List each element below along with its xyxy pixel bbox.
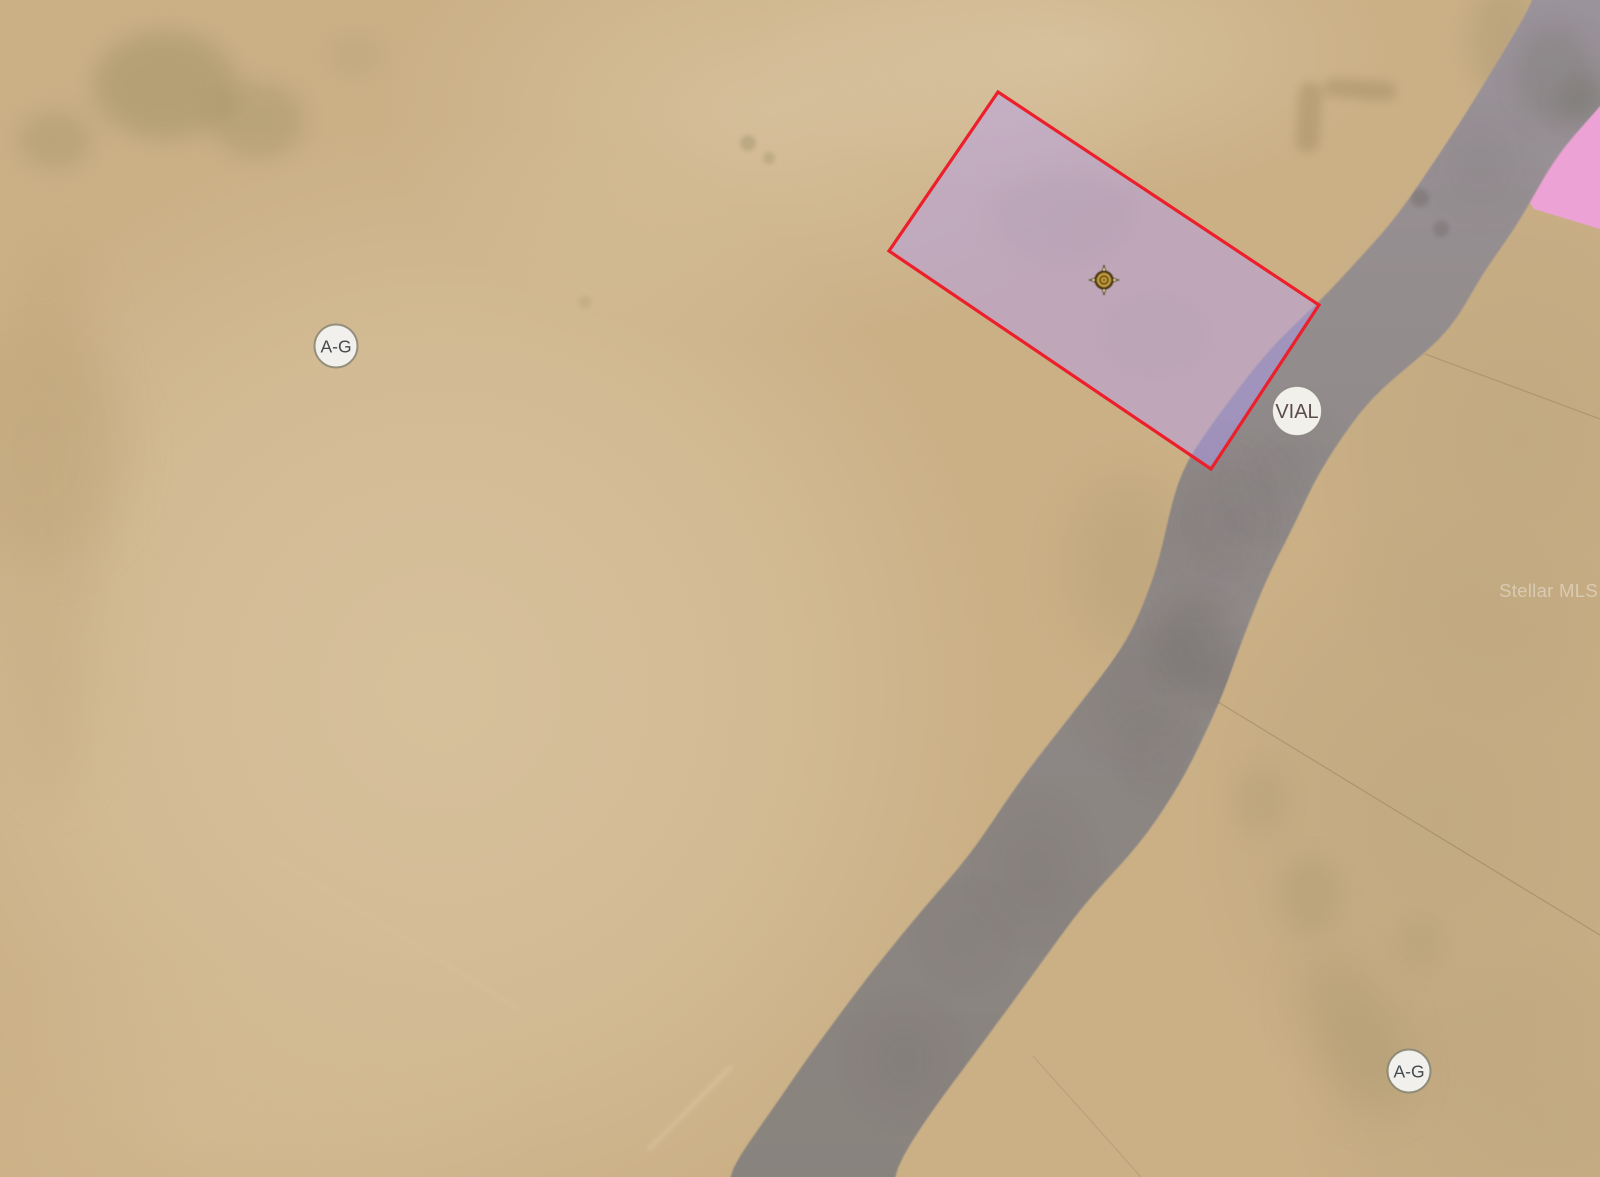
svg-text:A-G: A-G: [320, 337, 351, 357]
svg-text:Stellar MLS: Stellar MLS: [1499, 580, 1598, 601]
svg-text:A-G: A-G: [1393, 1062, 1424, 1082]
svg-text:VIAL: VIAL: [1275, 401, 1318, 423]
